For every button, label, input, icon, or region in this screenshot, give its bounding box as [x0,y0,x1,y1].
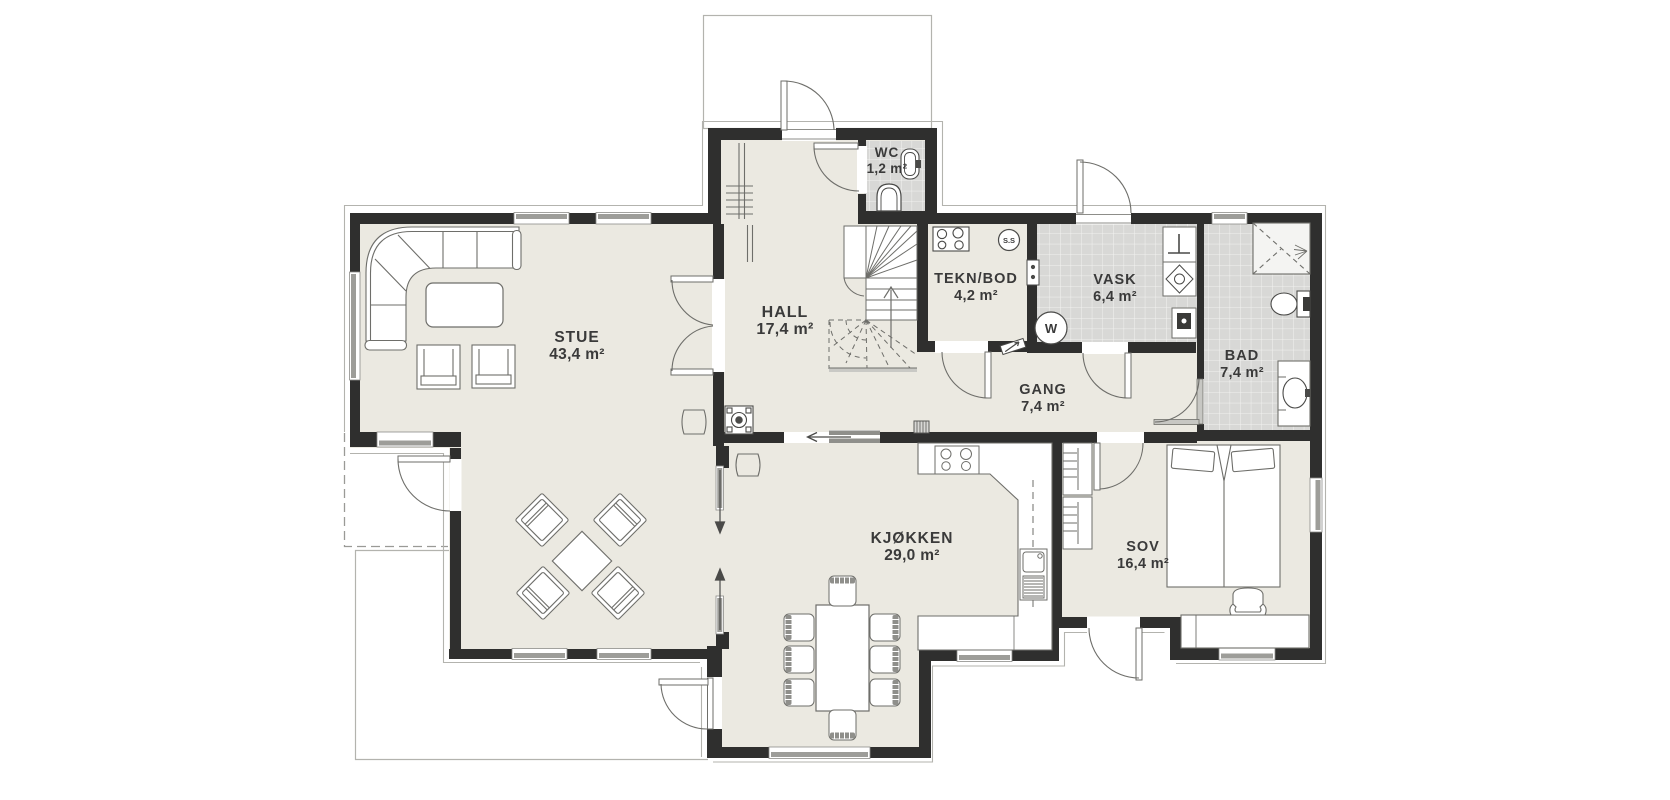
svg-text:17,4 m²: 17,4 m² [756,321,813,338]
svg-text:TEKN/BOD: TEKN/BOD [934,271,1018,287]
svg-text:WC: WC [875,145,900,160]
svg-text:STUE: STUE [554,329,599,346]
svg-text:SOV: SOV [1126,539,1160,555]
svg-text:4,2 m²: 4,2 m² [954,288,998,304]
svg-text:7,4 m²: 7,4 m² [1220,365,1264,381]
svg-text:BAD: BAD [1225,348,1259,364]
svg-text:KJØKKEN: KJØKKEN [871,530,954,547]
svg-text:43,4 m²: 43,4 m² [549,346,605,363]
svg-text:S.S: S.S [1003,236,1015,245]
svg-text:1,2 m²: 1,2 m² [867,161,908,176]
svg-text:16,4 m²: 16,4 m² [1117,556,1169,572]
svg-text:HALL: HALL [762,304,809,321]
svg-text:7,4 m²: 7,4 m² [1021,399,1065,415]
svg-text:29,0 m²: 29,0 m² [884,547,940,564]
svg-text:6,4 m²: 6,4 m² [1093,289,1137,305]
svg-text:VASK: VASK [1093,272,1136,288]
svg-text:GANG: GANG [1019,382,1067,398]
svg-text:W: W [1045,321,1058,336]
